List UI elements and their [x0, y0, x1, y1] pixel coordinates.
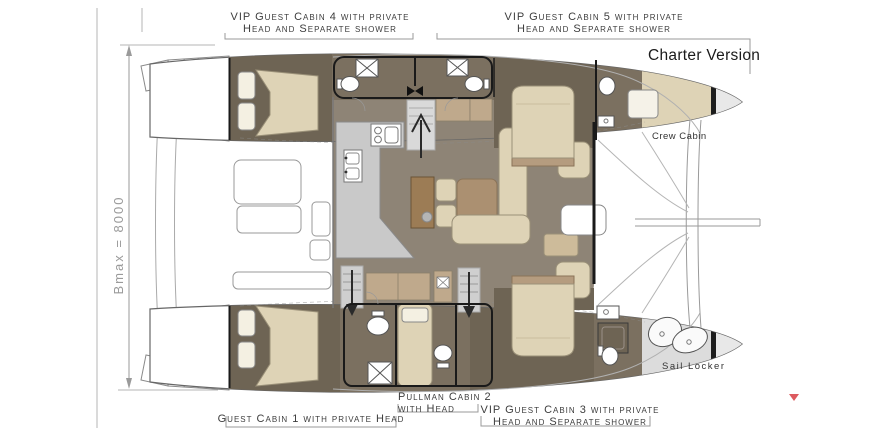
pillow — [238, 342, 255, 368]
toilet — [341, 77, 359, 92]
label-cabin1-line1: Guest Cabin 1 with private Head — [191, 414, 431, 426]
toilet — [434, 345, 452, 361]
label-cabin5-line2: Head and Separate shower — [474, 24, 714, 36]
toilet — [599, 77, 615, 95]
label-cabin2-line1: Pullman Cabin 2 — [398, 392, 518, 404]
toilet — [602, 347, 618, 365]
bow-bulkhead-starboard — [711, 300, 716, 398]
label-cabin3: VIP Guest Cabin 3 with private Head and … — [450, 405, 690, 428]
cockpit-table — [312, 202, 330, 236]
charter-version-title: Charter Version — [648, 47, 760, 65]
label-cabin1: Guest Cabin 1 with private Head — [191, 414, 431, 426]
cockpit-bench — [234, 160, 301, 204]
footboard — [512, 158, 574, 166]
l-settee — [452, 215, 530, 244]
cabinet — [470, 99, 492, 121]
toilet — [367, 317, 389, 335]
sink — [598, 116, 614, 127]
bed-cabin3 — [512, 276, 574, 356]
companionway-stairs-cabin3 — [458, 268, 480, 318]
toilet-tank — [372, 311, 384, 316]
pillow — [238, 103, 255, 130]
toilet — [465, 77, 483, 92]
bed-cabin5 — [512, 86, 574, 166]
companionway-port — [407, 100, 435, 158]
dinette-seat — [436, 179, 456, 201]
sideboard — [544, 234, 578, 256]
label-cabin4: VIP Guest Cabin 4 with private Head and … — [200, 12, 440, 35]
cabinet — [436, 99, 470, 121]
label-cabin3-line2: Head and Separate shower — [450, 417, 690, 429]
label-cabin4-line2: Head and Separate shower — [200, 24, 440, 36]
pillow — [238, 310, 255, 336]
label-cabin5: VIP Guest Cabin 5 with private Head and … — [474, 12, 714, 35]
table-pedestal — [422, 212, 432, 222]
footboard — [512, 276, 574, 284]
floor-plan-page: VIP Guest Cabin 4 with private Head and … — [0, 0, 890, 446]
bed-cabin4 — [238, 70, 318, 136]
label-cabin5-line1: VIP Guest Cabin 5 with private — [474, 12, 714, 24]
label-cabin4-line1: VIP Guest Cabin 4 with private — [200, 12, 440, 24]
label-sail-locker: Sail Locker — [662, 361, 726, 372]
crew-berth — [628, 90, 658, 118]
pillow — [402, 308, 428, 322]
label-cabin3-line1: VIP Guest Cabin 3 with private — [450, 405, 690, 417]
cockpit-bench — [233, 272, 331, 289]
catamaran-floor-plan-drawing — [0, 0, 890, 446]
toilet-tank — [484, 79, 489, 89]
cockpit-seat — [310, 240, 330, 260]
cockpit-bench — [237, 206, 301, 233]
toilet-tank — [437, 363, 449, 368]
beam-dimension-label: Bmax = 8000 — [111, 185, 125, 305]
bow-tip-starboard — [716, 300, 746, 398]
head-cabin2 — [434, 345, 452, 368]
foredeck-seat — [561, 205, 606, 235]
bed-pullman-cabin2 — [398, 304, 432, 386]
pillow — [238, 72, 255, 99]
label-crew-cabin: Crew Cabin — [652, 131, 707, 142]
red-triangle-marker-icon — [789, 394, 799, 401]
